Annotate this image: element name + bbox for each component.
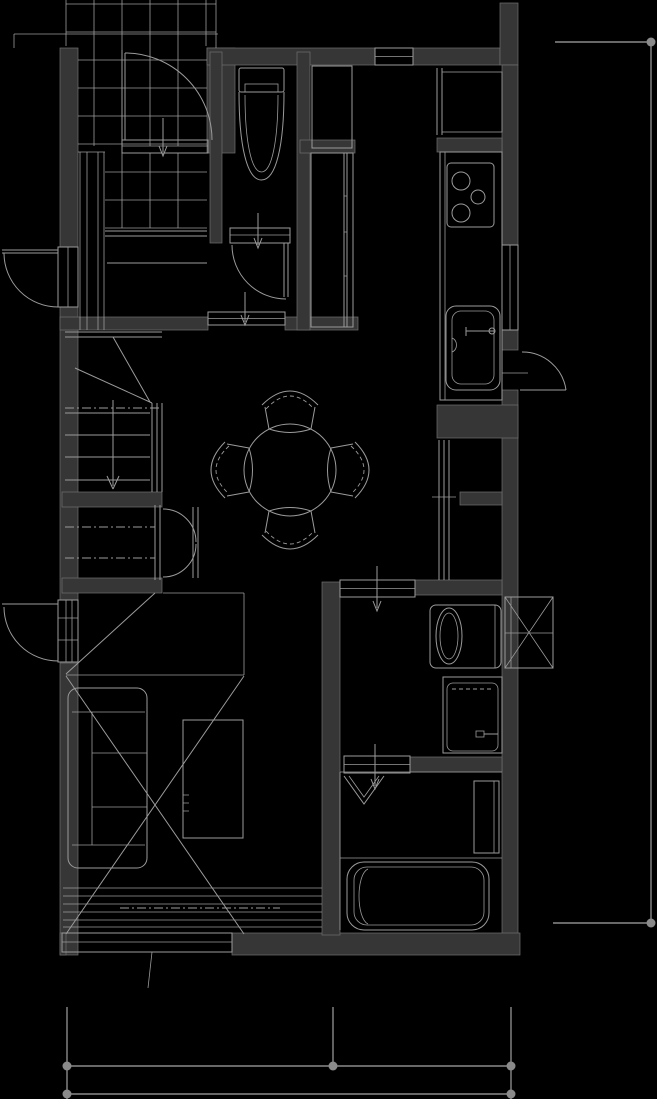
washroom bbox=[340, 566, 553, 789]
left-exterior-door-upper bbox=[2, 247, 78, 307]
floor-plan-drawing bbox=[0, 0, 657, 1099]
entrance-tile-grid bbox=[14, 0, 218, 263]
entry-direction-arrow bbox=[159, 118, 167, 156]
entrance-door bbox=[122, 50, 212, 153]
staircase bbox=[65, 332, 162, 492]
left-exterior-door-lower bbox=[2, 600, 78, 662]
kitchen-counter bbox=[440, 152, 502, 400]
chair-south bbox=[262, 508, 318, 550]
bathtub bbox=[347, 862, 489, 930]
hall-sliding-door bbox=[208, 292, 285, 325]
chair-east bbox=[328, 442, 370, 498]
sofa bbox=[68, 688, 147, 868]
toilet-room bbox=[230, 68, 290, 299]
refrigerator-alcove bbox=[437, 68, 502, 135]
floor-cross-mark bbox=[66, 676, 244, 934]
dining-table bbox=[244, 424, 336, 516]
bathroom-counter bbox=[474, 781, 499, 853]
living-room bbox=[62, 593, 322, 988]
dining-set bbox=[211, 391, 369, 549]
toilet-door bbox=[230, 213, 290, 299]
stair-handrail bbox=[152, 403, 162, 492]
floor-plan-canvas bbox=[0, 0, 657, 1099]
deck-stripes bbox=[63, 888, 322, 927]
living-bottom-window bbox=[62, 933, 232, 988]
washing-machine bbox=[430, 605, 501, 668]
kitchen bbox=[375, 48, 566, 400]
upper-cabinet bbox=[312, 66, 352, 148]
low-table bbox=[183, 720, 243, 838]
hall-closet bbox=[65, 505, 198, 580]
entry-side-cabinet bbox=[78, 152, 105, 330]
kitchen-window-right bbox=[502, 245, 518, 330]
vanity-sink bbox=[443, 677, 502, 753]
tall-closet bbox=[311, 153, 353, 327]
corridor-sliding-track bbox=[432, 440, 456, 580]
bathroom bbox=[340, 772, 502, 930]
toilet-fixture bbox=[239, 68, 284, 180]
kitchen-sink bbox=[446, 306, 500, 390]
stove-three-burner bbox=[447, 163, 494, 227]
dimension-right-vertical bbox=[553, 38, 656, 928]
kitchen-service-door bbox=[502, 352, 566, 390]
chair-west bbox=[211, 442, 253, 498]
corner-closet-diagonal bbox=[66, 593, 155, 674]
dimension-bottom bbox=[63, 1007, 516, 1099]
washroom-sliding-door-top bbox=[340, 566, 415, 611]
kitchen-window-top bbox=[375, 48, 413, 65]
chair-north bbox=[262, 391, 318, 433]
